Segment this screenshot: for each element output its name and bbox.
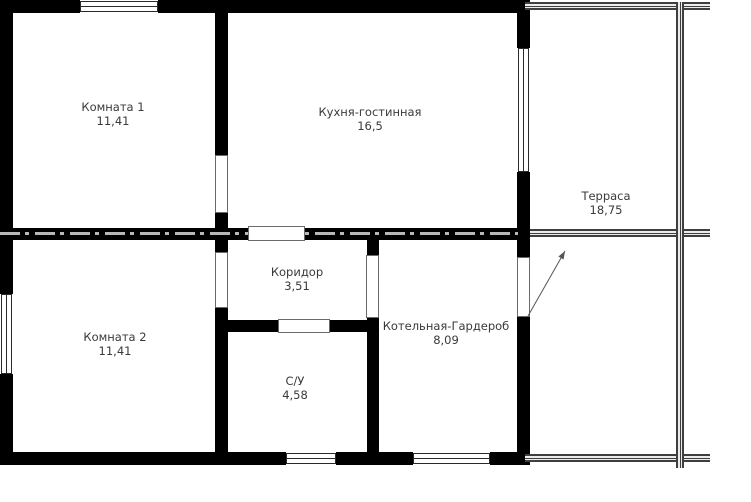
wall-room2-corridor-upper: [215, 240, 228, 252]
room-area: 11,41: [33, 114, 193, 128]
door-corridor-boiler: [366, 255, 379, 318]
room-name: Терраса: [546, 189, 666, 203]
door-room2-corridor: [215, 252, 228, 308]
room-name: С/У: [245, 374, 345, 388]
room-label-terrace: Терраса 18,75: [546, 189, 666, 217]
door-corridor-bath: [278, 319, 330, 333]
outer-wall-bottom-left: [0, 452, 286, 465]
door-kitchen-corridor: [248, 226, 305, 241]
floor-plan: Комната 1 11,41 Кухня-гостинная 16,5 Тер…: [0, 0, 751, 502]
outer-wall-left-upper: [0, 0, 13, 294]
room-label-room2: Комната 2 11,41: [35, 330, 195, 358]
room-name: Кухня-гостинная: [290, 105, 450, 119]
room-area: 11,41: [35, 344, 195, 358]
window-room2-left: [1, 294, 12, 374]
room-area: 16,5: [290, 119, 450, 133]
outer-wall-right-middle: [517, 172, 530, 257]
room-label-corridor: Коридор 3,51: [237, 265, 357, 293]
room-label-kitchen: Кухня-гостинная 16,5: [290, 105, 450, 133]
room-label-room1: Комната 1 11,41: [33, 100, 193, 128]
room-area: 3,51: [237, 279, 357, 293]
room-name: Котельная-Гардероб: [356, 319, 536, 333]
room-label-boiler: Котельная-Гардероб 8,09: [356, 319, 536, 347]
room-name: Комната 1: [33, 100, 193, 114]
window-room1-top: [80, 1, 158, 12]
window-bath-bottom: [286, 453, 336, 464]
room-area: 18,75: [546, 203, 666, 217]
door-room1-kitchen: [215, 155, 228, 213]
wall-room1-kitchen-upper: [215, 13, 228, 155]
room-label-bath: С/У 4,58: [245, 374, 345, 402]
window-boiler-bottom: [413, 453, 490, 464]
door-boiler-terrace: [517, 257, 530, 317]
window-kitchen-right: [518, 48, 529, 172]
terrace-rail-right: [676, 2, 684, 468]
wall-room2-corridor-lower: [215, 308, 228, 452]
room-name: Комната 2: [35, 330, 195, 344]
outer-wall-top-main: [158, 0, 525, 13]
wall-corridor-boiler-upper: [367, 240, 379, 255]
room-area: 4,58: [245, 388, 345, 402]
wall-corridor-bath-left: [228, 320, 278, 332]
room-name: Коридор: [237, 265, 357, 279]
room-area: 8,09: [356, 333, 536, 347]
outer-wall-bottom-mid: [336, 452, 413, 465]
